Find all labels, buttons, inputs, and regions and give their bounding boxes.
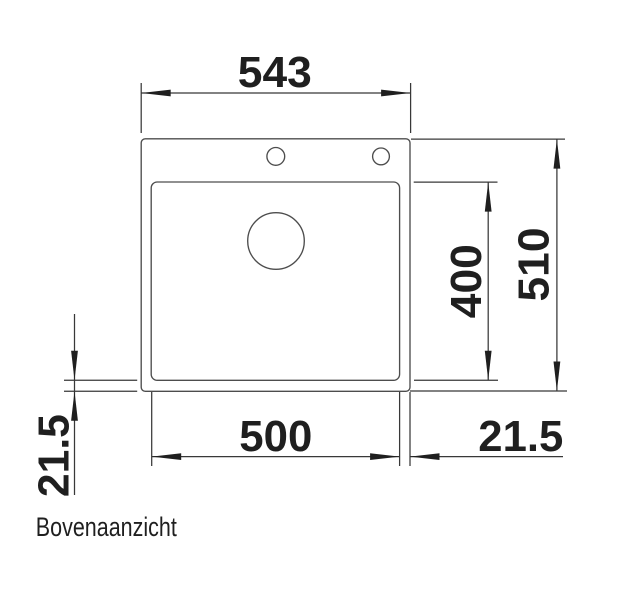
- svg-text:21.5: 21.5: [478, 412, 563, 461]
- svg-text:21.5: 21.5: [29, 414, 78, 497]
- svg-text:510: 510: [509, 228, 558, 302]
- svg-text:400: 400: [442, 244, 491, 318]
- svg-text:543: 543: [238, 48, 312, 97]
- svg-text:500: 500: [239, 412, 312, 461]
- svg-text:Bovenaanzicht: Bovenaanzicht: [36, 512, 177, 542]
